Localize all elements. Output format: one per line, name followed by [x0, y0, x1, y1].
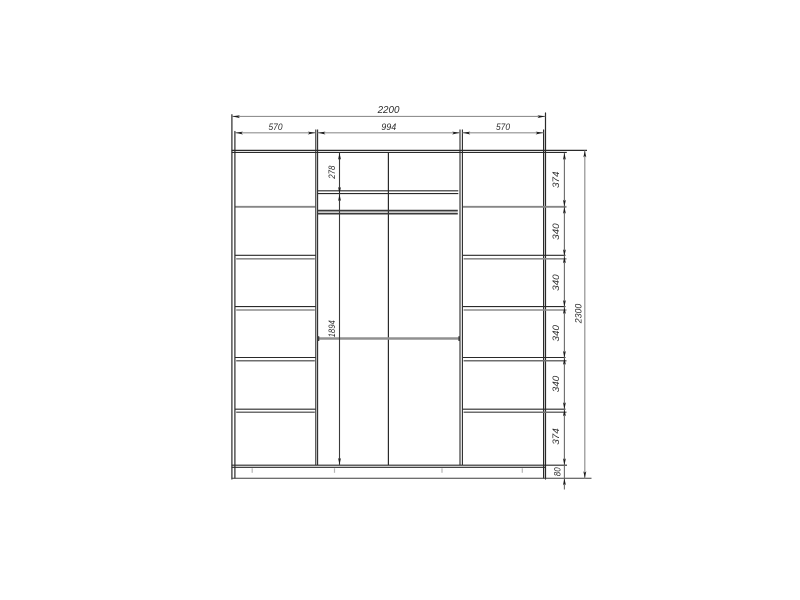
svg-text:570: 570: [496, 122, 510, 132]
svg-text:80: 80: [552, 467, 562, 476]
svg-text:374: 374: [551, 172, 561, 189]
svg-text:994: 994: [381, 122, 396, 132]
svg-text:278: 278: [327, 166, 337, 180]
svg-text:340: 340: [551, 376, 561, 393]
svg-text:340: 340: [551, 223, 561, 240]
svg-text:2300: 2300: [573, 304, 583, 324]
svg-text:340: 340: [551, 274, 561, 291]
svg-text:1894: 1894: [327, 320, 337, 337]
svg-text:570: 570: [269, 122, 283, 132]
svg-text:340: 340: [551, 325, 561, 342]
svg-text:374: 374: [551, 428, 561, 445]
svg-text:2200: 2200: [377, 105, 400, 116]
